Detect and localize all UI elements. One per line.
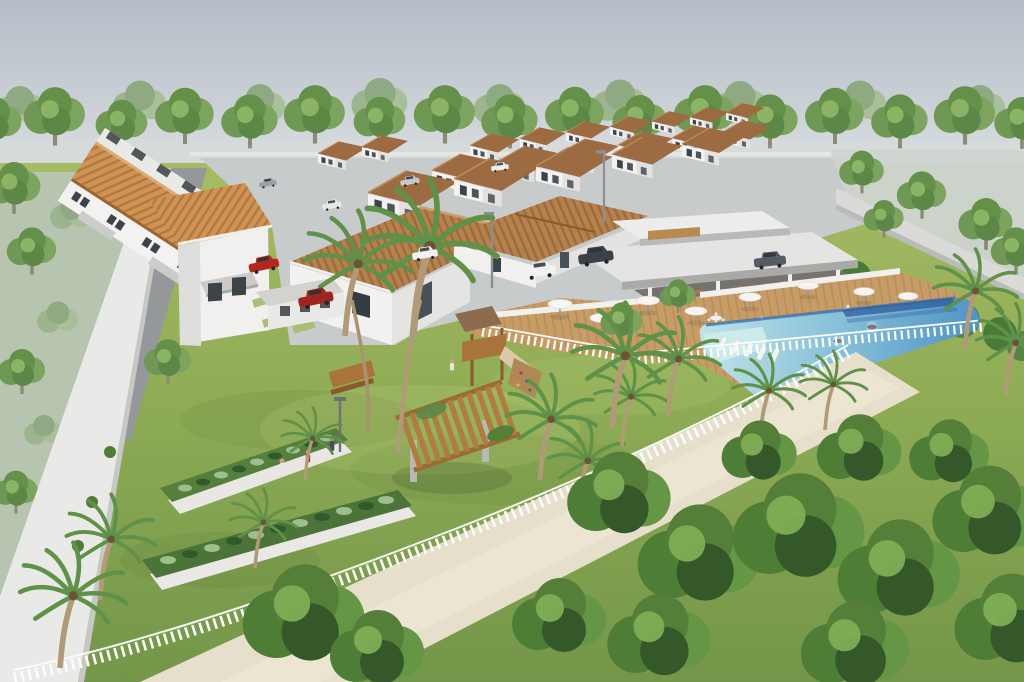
scene-canvas [0,0,1024,682]
person [450,359,454,371]
person [280,459,285,474]
aerial-render: Aerial render of a gated residential con… [0,0,1024,682]
